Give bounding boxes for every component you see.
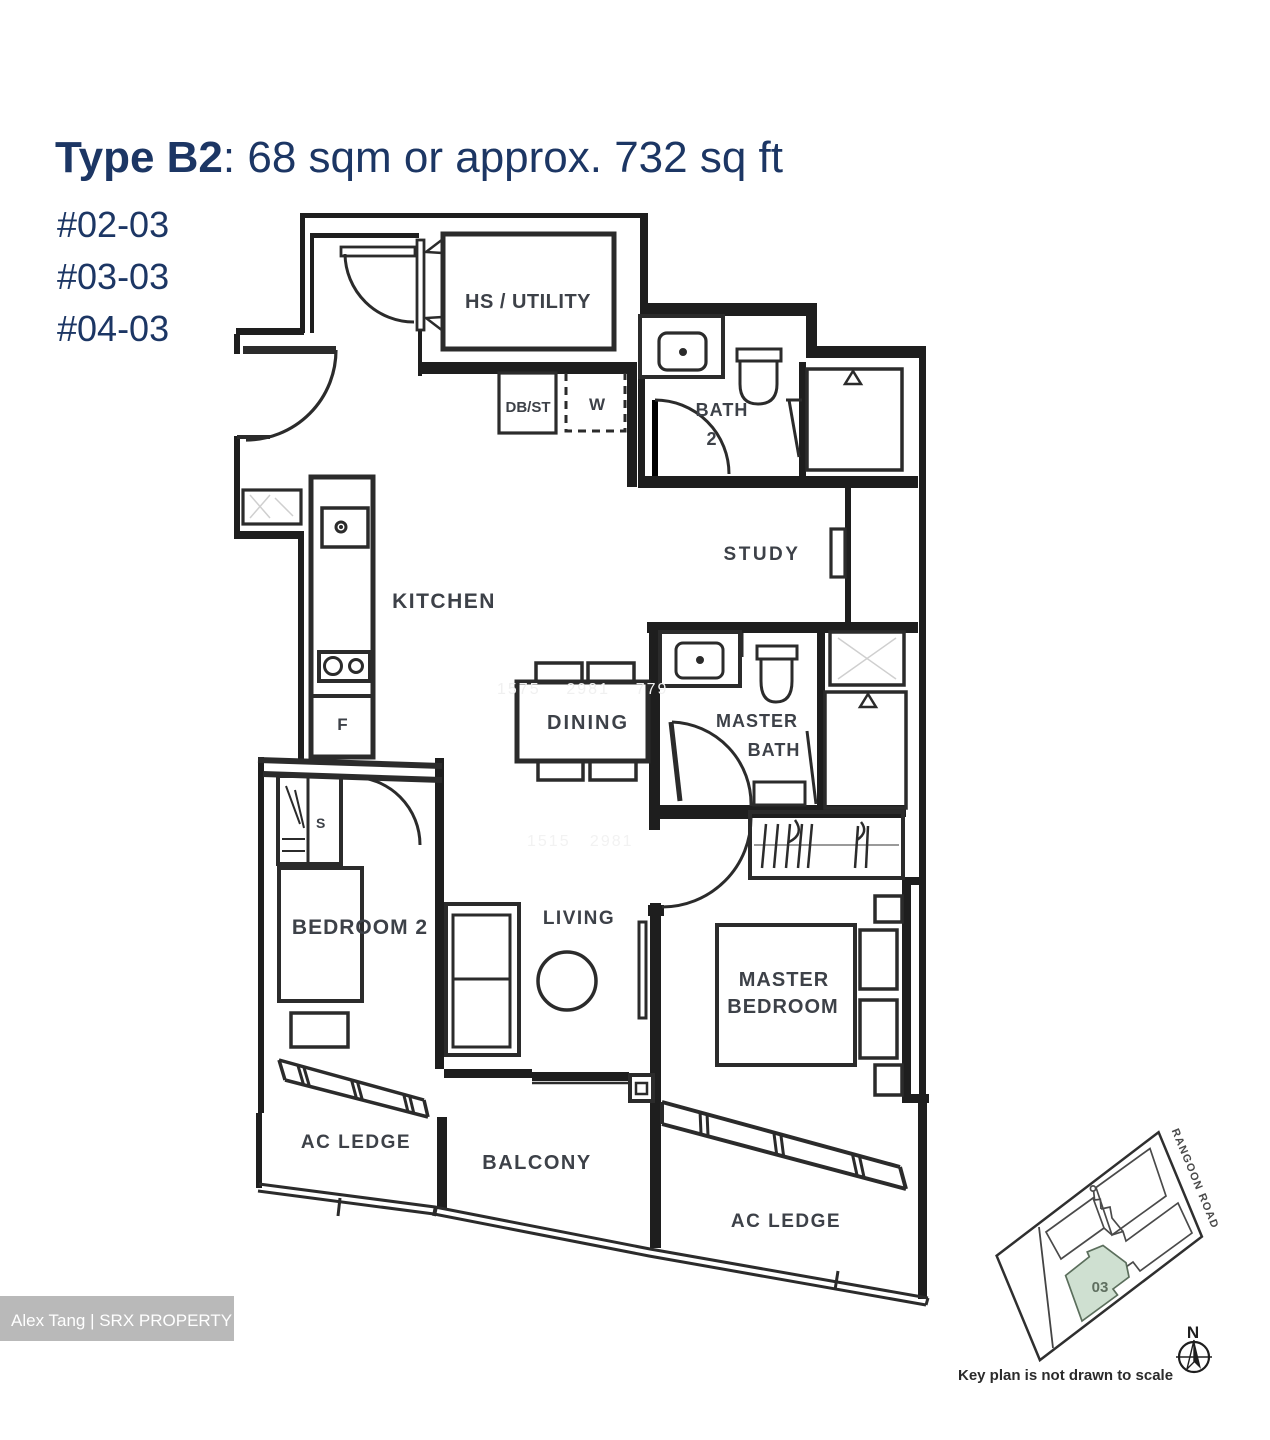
svg-text:BEDROOM: BEDROOM xyxy=(727,996,838,1018)
svg-text:#02-03: #02-03 xyxy=(57,204,169,245)
svg-text:LIVING: LIVING xyxy=(543,908,615,929)
svg-text:BEDROOM 2: BEDROOM 2 xyxy=(292,916,428,939)
svg-text:AC LEDGE: AC LEDGE xyxy=(301,1132,411,1153)
svg-text:BALCONY: BALCONY xyxy=(482,1152,591,1174)
svg-text:AC LEDGE: AC LEDGE xyxy=(731,1211,841,1232)
svg-text:#03-03: #03-03 xyxy=(57,256,169,297)
svg-text:Key plan is not drawn to scale: Key plan is not drawn to scale xyxy=(958,1367,1173,1384)
svg-text:#04-03: #04-03 xyxy=(57,308,169,349)
svg-text:BATH: BATH xyxy=(748,740,801,760)
svg-text:W: W xyxy=(589,395,606,414)
svg-text:DB/ST: DB/ST xyxy=(506,399,551,416)
svg-text:F: F xyxy=(337,715,348,734)
svg-text:Alex Tang | SRX PROPERTY: Alex Tang | SRX PROPERTY xyxy=(11,1311,232,1330)
svg-text:HS / UTILITY: HS / UTILITY xyxy=(465,291,591,313)
svg-text:1575 2981 779: 1575 2981 779 xyxy=(497,681,668,698)
svg-text:N: N xyxy=(1187,1323,1199,1342)
svg-text:MASTER: MASTER xyxy=(716,711,798,731)
svg-text:03: 03 xyxy=(1092,1279,1109,1296)
svg-text:Type B2: 68 sqm or approx. 732: Type B2: 68 sqm or approx. 732 sq ft xyxy=(55,133,783,182)
svg-text:KITCHEN: KITCHEN xyxy=(392,590,496,613)
svg-text:2: 2 xyxy=(706,429,717,449)
svg-text:MASTER: MASTER xyxy=(739,969,829,991)
svg-text:STUDY: STUDY xyxy=(724,544,801,565)
svg-text:S: S xyxy=(316,815,325,831)
svg-text:1515 2981: 1515 2981 xyxy=(527,833,634,850)
svg-text:DINING: DINING xyxy=(547,712,629,734)
svg-text:BATH: BATH xyxy=(696,400,749,420)
